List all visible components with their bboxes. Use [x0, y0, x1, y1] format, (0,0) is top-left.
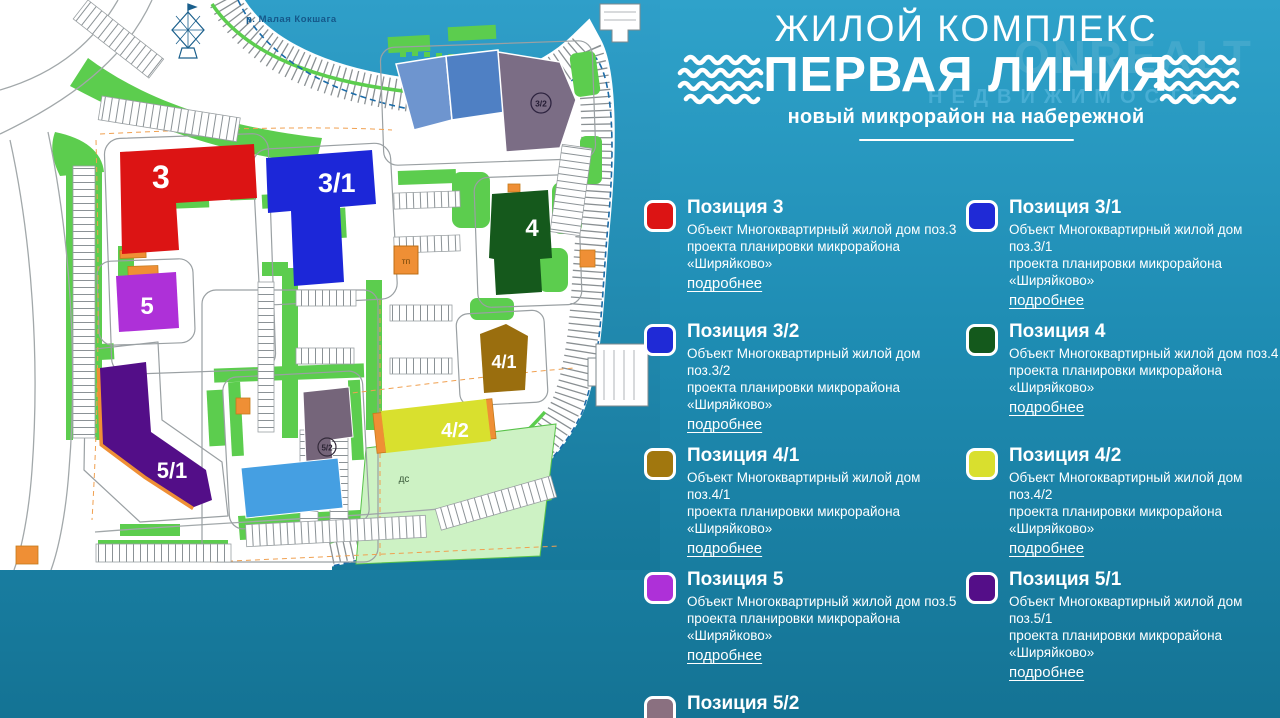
position-description: Объект Многоквартирный жилой дом поз.4/2…	[1009, 469, 1280, 537]
legend-item-4-1: Позиция 4/1 Объект Многоквартирный жилой…	[644, 446, 966, 558]
position-description: Объект Многоквартирный жилой дом поз.3/1…	[1009, 221, 1280, 289]
building-4-1-label: 4/1	[491, 352, 516, 372]
position-description: Объект Многоквартирный жилой дом поз.5пр…	[687, 593, 956, 644]
details-link-3[interactable]: подробнее	[687, 275, 762, 292]
legend-item-5-1: Позиция 5/1 Объект Многоквартирный жилой…	[966, 570, 1280, 682]
building-3-2-label: 3/2	[535, 99, 547, 109]
position-title: Позиция 3/2	[687, 322, 966, 342]
kindergarten-label: дс	[399, 474, 410, 485]
legend: Позиция 3 Объект Многоквартирный жилой д…	[644, 198, 1280, 718]
position-title: Позиция 3	[687, 198, 956, 218]
legend-item-3: Позиция 3 Объект Многоквартирный жилой д…	[644, 198, 966, 310]
position-description: Объект Многоквартирный жилой дом поз.4/1…	[687, 469, 966, 537]
details-link-3-1[interactable]: подробнее	[1009, 292, 1084, 309]
building-5-1-label: 5/1	[157, 458, 188, 483]
building-3-label: 3	[152, 159, 170, 195]
complex-kicker: ЖИЛОЙ КОМПЛЕКС	[660, 10, 1272, 49]
legend-item-4-2: Позиция 4/2 Объект Многоквартирный жилой…	[966, 446, 1280, 558]
color-swatch-4-2	[966, 448, 998, 480]
legend-item-3-2: Позиция 3/2 Объект Многоквартирный жилой…	[644, 322, 966, 434]
position-description: Объект Многоквартирный жилой дом поз.5/1…	[1009, 593, 1280, 661]
legend-item-3-1: Позиция 3/1 Объект Многоквартирный жилой…	[966, 198, 1280, 310]
position-description: Объект Многоквартирный жилой дом поз.4пр…	[1009, 345, 1278, 396]
header-divider	[859, 139, 1074, 142]
details-link-3-2[interactable]: подробнее	[687, 416, 762, 433]
position-description: Объект Многоквартирный жилой дом поз.3пр…	[687, 221, 956, 272]
details-link-5-1[interactable]: подробнее	[1009, 664, 1084, 681]
color-swatch-3	[644, 200, 676, 232]
color-swatch-3-2	[644, 324, 676, 356]
building-5-label: 5	[140, 293, 153, 320]
position-title: Позиция 5	[687, 570, 956, 590]
complex-subtitle: новый микрорайон на набережной	[660, 106, 1272, 129]
details-link-4[interactable]: подробнее	[1009, 399, 1084, 416]
waves-icon-left	[676, 52, 768, 108]
position-title: Позиция 3/1	[1009, 198, 1280, 218]
position-description: Объект Многоквартирный жилой дом поз.3/2…	[687, 345, 966, 413]
river-label: р. Малая Кокшага	[246, 14, 337, 25]
building-4-2-label: 4/2	[441, 420, 469, 442]
color-swatch-4	[966, 324, 998, 356]
color-swatch-4-1	[644, 448, 676, 480]
position-title: Позиция 4/1	[687, 446, 966, 466]
color-swatch-5-2	[644, 696, 676, 718]
existing-building-2	[446, 50, 506, 120]
position-title: Позиция 4	[1009, 322, 1278, 342]
color-swatch-5	[644, 572, 676, 604]
legend-item-5-2: Позиция 5/2 Объект Многоквартирный жилой…	[644, 694, 966, 718]
position-title: Позиция 5/1	[1009, 570, 1280, 590]
building-5-2-label: 5/2	[321, 444, 333, 453]
page: 3/2 5/2 3 3/1 4 4/1 4/2 5 5/1 тп дс	[0, 0, 1280, 718]
building-3-1-label: 3/1	[318, 168, 356, 198]
color-swatch-5-1	[966, 572, 998, 604]
color-swatch-3-1	[966, 200, 998, 232]
site-plan-svg: 3/2 5/2 3 3/1 4 4/1 4/2 5 5/1 тп дс	[0, 0, 660, 570]
waves-icon-right	[1152, 52, 1244, 108]
position-title: Позиция 5/2	[687, 694, 966, 714]
details-link-5[interactable]: подробнее	[687, 647, 762, 664]
details-link-4-1[interactable]: подробнее	[687, 540, 762, 557]
position-title: Позиция 4/2	[1009, 446, 1280, 466]
legend-item-5: Позиция 5 Объект Многоквартирный жилой д…	[644, 570, 966, 682]
tp-label: тп	[402, 256, 411, 266]
site-plan-map: 3/2 5/2 3 3/1 4 4/1 4/2 5 5/1 тп дс	[0, 0, 660, 570]
existing-building-3	[241, 458, 343, 518]
details-link-4-2[interactable]: подробнее	[1009, 540, 1084, 557]
legend-item-4: Позиция 4 Объект Многоквартирный жилой д…	[966, 322, 1280, 434]
building-4-label: 4	[525, 215, 539, 242]
